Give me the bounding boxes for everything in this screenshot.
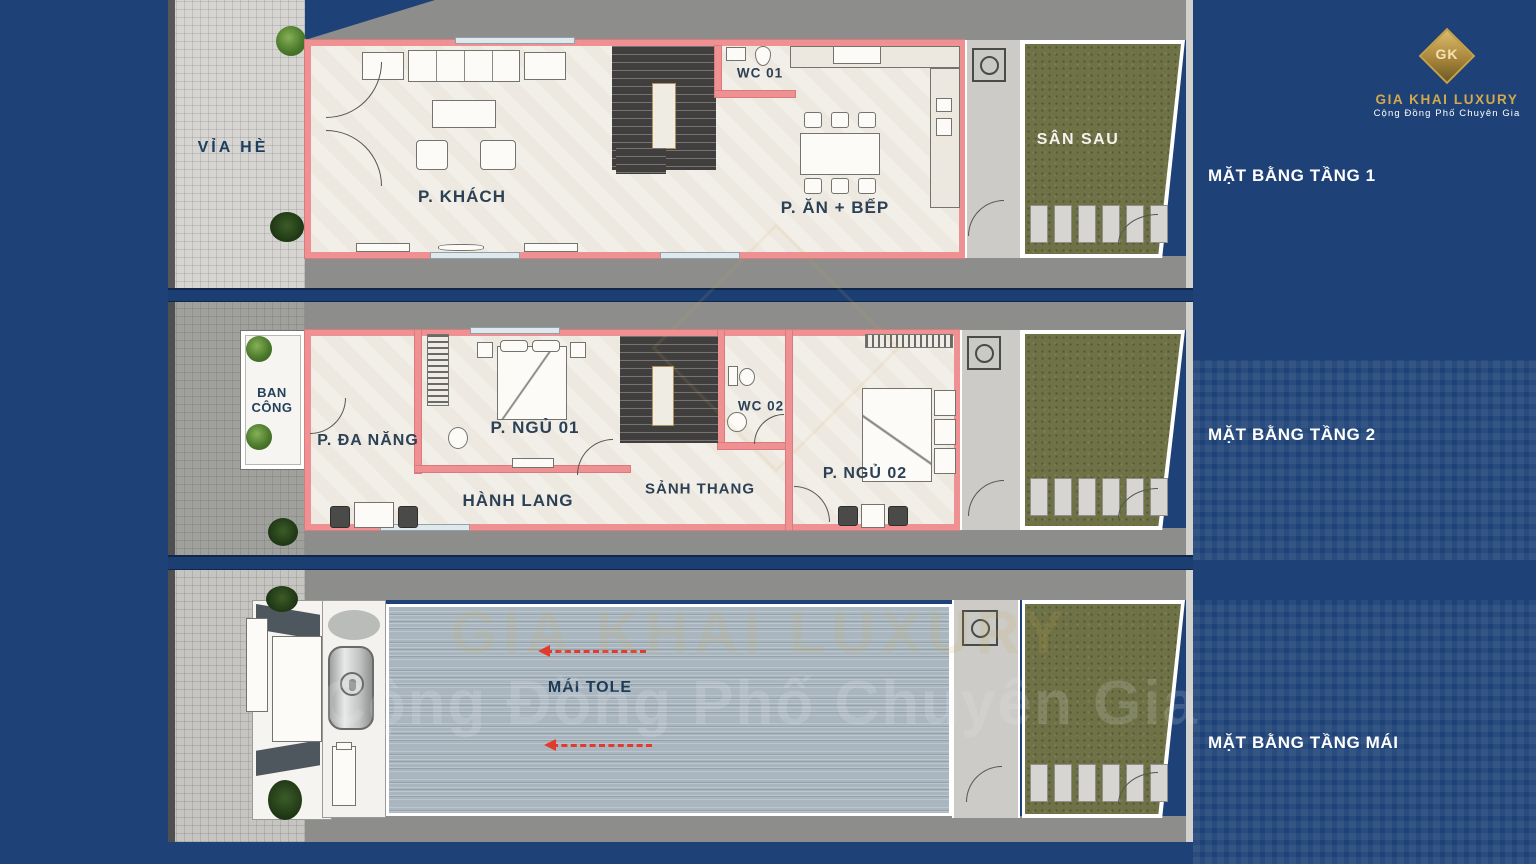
tv-console — [356, 243, 410, 252]
small-table — [861, 504, 885, 528]
dining-chair — [831, 112, 849, 128]
water-heater — [332, 746, 356, 806]
porch-roof — [272, 636, 322, 742]
palm-plant-icon — [266, 586, 298, 612]
lot-edge-strip — [1186, 302, 1193, 557]
window — [470, 327, 560, 334]
shadow-blob — [328, 610, 380, 640]
kitchen-island — [833, 46, 881, 64]
floorplan-poster: VỈA HÈ P. KHÁCH WC 01 P. ĂN + BẾP SÂN SA… — [0, 0, 1536, 864]
lot-edge-strip — [1186, 0, 1193, 290]
bedside-unit — [934, 419, 956, 445]
wardrobe — [427, 334, 449, 406]
dresser — [512, 458, 554, 468]
lot-edge-strip — [1186, 570, 1193, 842]
chair — [838, 506, 858, 526]
neighbor-strip-top — [305, 570, 1193, 600]
hallway-label: HÀNH LANG — [463, 491, 574, 511]
pixel-pattern — [1193, 600, 1536, 864]
curb-edge — [168, 570, 175, 842]
chair — [330, 506, 350, 528]
bush-icon — [276, 26, 306, 56]
nightstand — [570, 342, 586, 358]
heater-cap — [336, 742, 352, 750]
tank-valve — [349, 679, 356, 691]
window — [430, 252, 520, 259]
dining-table — [800, 133, 880, 175]
drain-box-icon — [972, 48, 1006, 82]
armchair — [416, 140, 448, 170]
side-table — [524, 52, 566, 80]
stove-icon — [936, 98, 952, 112]
sidewalk-label: VỈA HÈ — [198, 139, 269, 157]
slope-arrow-icon — [552, 744, 652, 747]
wc1-wall — [715, 91, 795, 97]
slope-arrow-icon — [546, 650, 646, 653]
sofa — [408, 50, 520, 82]
small-table — [354, 502, 394, 528]
window — [660, 252, 740, 259]
neighbor-strip-bottom — [305, 816, 1193, 842]
pixel-pattern — [1193, 360, 1536, 560]
roof-label-right: MẶT BẰNG TẦNG MÁI — [1208, 733, 1399, 753]
dining-chair — [831, 178, 849, 194]
stair-hall-label: SẢNH THANG — [645, 481, 755, 498]
living-room-label: P. KHÁCH — [418, 187, 506, 207]
decor-shelf — [438, 244, 484, 251]
dining-kitchen-label: P. ĂN + BẾP — [781, 198, 889, 218]
wc1-label: WC 01 — [737, 66, 783, 81]
dining-chair — [804, 178, 822, 194]
bedside-unit — [934, 448, 956, 474]
stair-landing — [652, 366, 674, 426]
pillow — [532, 340, 560, 352]
tv-console — [524, 243, 578, 252]
round-table — [448, 427, 468, 449]
nightstand — [477, 342, 493, 358]
pillow — [500, 340, 528, 352]
roof-label: MÁI TOLE — [548, 679, 632, 697]
dining-chair — [858, 178, 876, 194]
coffee-table — [432, 100, 496, 128]
curb-edge — [168, 302, 175, 557]
chair — [398, 506, 418, 528]
floor1-label: MẶT BẰNG TẦNG 1 — [1208, 166, 1376, 186]
dining-chair — [804, 112, 822, 128]
metal-roof — [386, 604, 952, 816]
logo-monogram: GK — [1427, 46, 1467, 62]
dining-chair — [858, 112, 876, 128]
logo-tagline-text: Cộng Đồng Phố Chuyên Gia — [1327, 108, 1536, 119]
partition-wall — [415, 330, 421, 473]
armchair — [480, 140, 516, 170]
balcony-label: BAN CÔNG — [243, 386, 301, 416]
neighbor-strip-bottom — [305, 528, 1193, 557]
band-separator — [168, 288, 1193, 303]
band-separator — [168, 555, 1193, 571]
balcony-plant-icon — [246, 336, 272, 362]
drain-box-icon — [962, 610, 998, 646]
chair — [888, 506, 908, 526]
bedside-unit — [934, 390, 956, 416]
window — [455, 37, 575, 44]
palm-plant-icon — [268, 518, 298, 546]
neighbor-strip-top — [305, 0, 1193, 40]
multipurpose-label: P. ĐA NĂNG — [317, 432, 419, 450]
canopy-ledge — [246, 618, 268, 712]
palm-plant-icon — [270, 212, 304, 242]
vanity — [726, 47, 746, 61]
stair-landing — [652, 83, 676, 149]
curb-edge — [168, 0, 175, 290]
kitchen-counter-right — [930, 68, 960, 208]
balcony-plant-icon — [246, 424, 272, 450]
wc1-wall — [715, 46, 721, 97]
logo-brand-text: GIA KHAI LUXURY — [1327, 92, 1536, 107]
sink-icon — [936, 118, 952, 136]
floor2-label: MẶT BẰNG TẦNG 2 — [1208, 425, 1376, 445]
bed — [497, 346, 567, 420]
palm-plant-icon — [268, 780, 302, 820]
drain-box-icon — [967, 336, 1001, 370]
bedroom2-label: P. NGỦ 02 — [823, 465, 907, 483]
bedroom1-label: P. NGỦ 01 — [490, 418, 579, 438]
stair-lower-steps — [616, 148, 666, 174]
backyard-label: SÂN SAU — [1037, 131, 1120, 149]
